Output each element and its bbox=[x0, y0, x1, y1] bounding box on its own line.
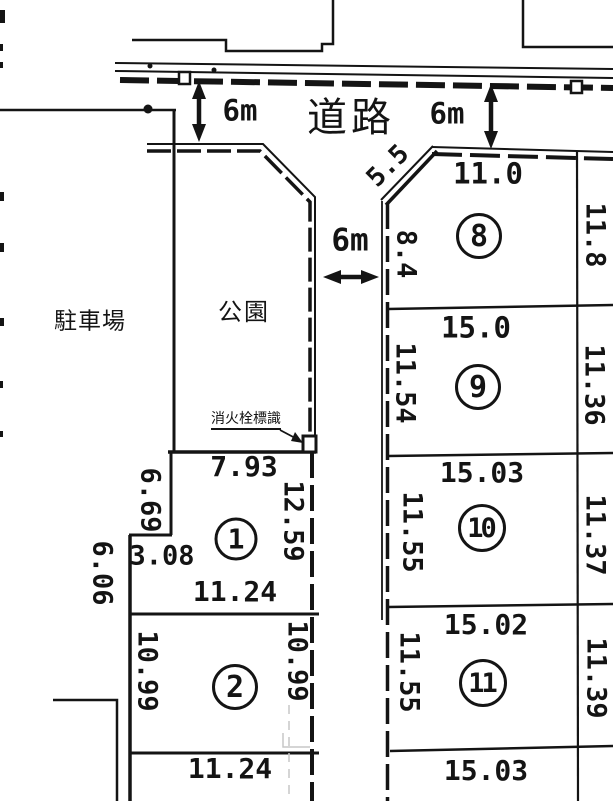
road-label: 道路 bbox=[307, 98, 395, 138]
plot-1-number-badge: 1 bbox=[215, 518, 258, 561]
dim-plot11-left: 11.55 bbox=[396, 631, 423, 712]
double-arrow-horizontal-center-icon bbox=[323, 270, 379, 284]
plot-9-number-badge: 9 bbox=[455, 364, 501, 410]
building-outlines bbox=[132, 0, 613, 51]
plot-11-number: 11 bbox=[471, 668, 495, 699]
top-road-edge bbox=[115, 63, 613, 93]
park-label: 公園 bbox=[218, 300, 270, 324]
road-marker-box-left bbox=[179, 72, 190, 84]
dim-plot1-outer-left: 6.06 bbox=[89, 540, 116, 605]
dim-plot10-left: 11.55 bbox=[399, 491, 426, 572]
dim-plot9-right: 11.36 bbox=[581, 344, 608, 425]
dim-plot1-left: 6.69 bbox=[137, 467, 164, 532]
plot-10-number: 10 bbox=[470, 513, 494, 544]
dim-plot2-right: 10.99 bbox=[284, 620, 311, 701]
plot-11-number-badge: 11 bbox=[459, 659, 507, 707]
dim-plot11-bottom: 15.03 bbox=[444, 757, 528, 785]
dim-road-width-top-right: 6m bbox=[430, 100, 465, 129]
fire-hydrant-label: 消火栓標識 bbox=[211, 412, 281, 430]
dim-plot9-left: 11.54 bbox=[392, 342, 419, 423]
dim-plot8-left: 8.4 bbox=[393, 230, 420, 279]
dim-road-width-center: 6m bbox=[331, 226, 368, 257]
plot-10-number-badge: 10 bbox=[458, 504, 506, 552]
plot-8-number-badge: 8 bbox=[456, 213, 502, 259]
dim-plot2-left: 10.99 bbox=[134, 630, 161, 711]
plot-2-number-badge: 2 bbox=[212, 664, 258, 710]
dim-plot1-top: 7.93 bbox=[210, 453, 277, 481]
double-arrow-vertical-right-icon bbox=[484, 84, 498, 149]
dim-plot10-right: 11.37 bbox=[582, 494, 609, 575]
plot-1-number: 1 bbox=[228, 523, 245, 556]
fire-hydrant-symbol bbox=[280, 430, 316, 452]
dim-plot11-right: 11.39 bbox=[583, 637, 610, 718]
dim-plot9-top: 15.0 bbox=[441, 314, 511, 343]
plot-8-number: 8 bbox=[470, 219, 488, 254]
dim-plot11-top: 15.02 bbox=[444, 611, 528, 639]
dim-road-width-top-left: 6m bbox=[223, 97, 258, 126]
scan-artifacts bbox=[0, 10, 5, 437]
dim-plot2-bottom: 11.24 bbox=[188, 755, 272, 783]
dim-plot1-bottom: 11.24 bbox=[193, 578, 277, 606]
dim-plot10-top: 15.03 bbox=[440, 459, 524, 487]
plot-9-number: 9 bbox=[469, 370, 487, 405]
site-plan-map: 道路 駐車場 公園 消火栓標識 6m 6m 6m 5.5 7.93 6.69 1… bbox=[0, 0, 613, 801]
boundary-point-dot bbox=[144, 105, 153, 114]
double-arrow-vertical-left-icon bbox=[192, 81, 206, 142]
road-marker-box-right bbox=[571, 81, 582, 93]
parking-label: 駐車場 bbox=[54, 311, 126, 334]
dim-plot8-right: 11.8 bbox=[582, 202, 609, 267]
dim-plot1-step: 3.08 bbox=[129, 543, 194, 570]
plot-2-number: 2 bbox=[226, 670, 244, 705]
dim-plot1-right: 12.59 bbox=[280, 480, 307, 561]
dim-plot8-top: 11.0 bbox=[453, 160, 523, 189]
